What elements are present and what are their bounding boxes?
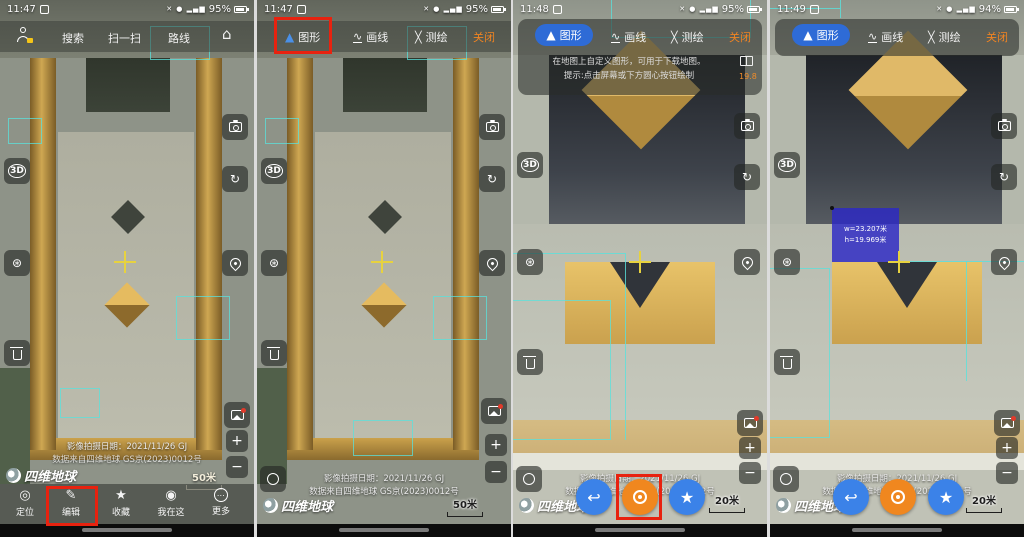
panel-draw-menu: 11:47 ✕ ● ▂▄▆ 95% ▲ 图形 ∿ 画线 ╳ 测绘 关闭 3D ⊛… [257, 0, 511, 537]
layers-icon: ⊛ [12, 256, 22, 270]
layers-icon: ⊛ [782, 255, 792, 269]
battery-percent: 95% [466, 4, 488, 15]
line-label: 画线 [366, 29, 388, 45]
circle-icon [523, 473, 535, 485]
logo-swirl-icon [519, 498, 534, 513]
close-button[interactable]: 关闭 [729, 29, 751, 45]
draw-line-button[interactable]: ∿ 画线 [353, 29, 388, 45]
delete-button[interactable] [4, 340, 30, 366]
zoom-out-button[interactable]: − [996, 462, 1018, 484]
camera-button[interactable] [734, 113, 760, 139]
compass-button[interactable] [516, 466, 542, 492]
pin-icon [739, 254, 755, 270]
three-d-icon: 3D [8, 164, 27, 178]
camera-button[interactable] [479, 114, 505, 140]
plus-icon: + [490, 437, 502, 453]
undo-button[interactable]: ↩ [576, 479, 612, 515]
trash-icon [526, 359, 535, 369]
map-scale: 50米 [447, 496, 483, 517]
minus-icon: − [1001, 465, 1013, 481]
battery-icon [1004, 6, 1017, 13]
four-screenshot-strip: 11:47 ✕ ● ▂▄▆ 95% 搜索 扫一扫 路线 ⌂ 3D [0, 0, 1024, 537]
camera-icon [741, 121, 754, 131]
close-button[interactable]: 关闭 [986, 29, 1008, 45]
scale-bar [447, 512, 483, 517]
scan-label: 扫一扫 [108, 30, 141, 46]
status-bar: 11:47 ✕ ● ▂▄▆ 95% [0, 0, 254, 18]
mode-3d-button[interactable]: 3D [261, 158, 287, 184]
vector-overlay [625, 253, 626, 440]
highlight-box-draw-center [616, 474, 662, 520]
hint-text-line2: 提示:点击屏幕或下方圆心按钮绘制 [527, 69, 731, 81]
three-d-icon: 3D [265, 164, 284, 178]
refresh-view-button[interactable]: ↻ [734, 164, 760, 190]
map-crosshair [629, 251, 651, 273]
map-crosshair [888, 251, 910, 273]
share-screenshot-button[interactable] [994, 410, 1020, 436]
close-label: 关闭 [986, 29, 1008, 45]
layers-button[interactable]: ⊛ [774, 249, 800, 275]
home-indicator[interactable] [82, 528, 172, 532]
shape-tool-button-active[interactable]: ▲ 图形 [535, 24, 593, 46]
plus-icon: + [744, 440, 756, 456]
picture-icon [744, 418, 757, 428]
bottom-nav: ◎ 定位 ✎ 编辑 ★ 收藏 ◉ 我在这 ⋯ 更多 [0, 484, 254, 524]
nav-more[interactable]: ⋯ 更多 [198, 488, 244, 517]
refresh-view-button[interactable]: ↻ [479, 166, 505, 192]
shape-tool-button-active[interactable]: ▲ 图形 [792, 24, 850, 46]
picture-icon [488, 406, 501, 416]
survey-label: 测绘 [682, 29, 704, 45]
signal-icons: ✕ ● ▂▄▆ [936, 5, 976, 13]
camera-icon [229, 122, 242, 132]
save-favorite-button[interactable]: ★ [669, 479, 705, 515]
measure-width: w=23.207米 [844, 224, 887, 235]
layers-button[interactable]: ⊛ [517, 249, 543, 275]
survey-label: 测绘 [426, 29, 448, 45]
shape-label: 图形 [560, 27, 582, 43]
route-button[interactable]: 路线 [168, 30, 190, 46]
survey-cross-icon: ╳ [928, 32, 935, 43]
pin-icon [227, 255, 243, 271]
clock: 11:49 [777, 4, 806, 15]
compass-button[interactable] [260, 466, 286, 492]
zoom-out-button[interactable]: − [739, 462, 761, 484]
mode-3d-button[interactable]: 3D [4, 158, 30, 184]
delete-button[interactable] [517, 349, 543, 375]
share-screenshot-button[interactable] [481, 398, 507, 424]
close-label: 关闭 [473, 29, 495, 45]
minus-icon: − [231, 459, 243, 475]
imagery-date: 影像拍摄日期：2021/11/26 GJ [257, 472, 511, 484]
camera-button[interactable] [991, 113, 1017, 139]
scale-label: 50米 [453, 500, 477, 511]
three-d-icon: 3D [778, 158, 797, 172]
polyline-icon: ∿ [353, 31, 362, 43]
pin-icon [996, 254, 1012, 270]
battery-percent: 94% [979, 4, 1001, 15]
close-label: 关闭 [729, 29, 751, 45]
circle-icon [267, 473, 279, 485]
app-logo: 四维地球 [263, 496, 333, 515]
dot-circle-icon: ◉ [165, 488, 176, 503]
star-icon: ★ [680, 488, 694, 507]
badge [27, 38, 33, 43]
undo-icon: ↩ [587, 488, 600, 507]
zoom-out-button[interactable]: − [226, 456, 248, 478]
shape-cloud-icon: ▲ [546, 29, 555, 41]
refresh-view-button[interactable]: ↻ [222, 166, 248, 192]
signal-icons: ✕ ● ▂▄▆ [166, 5, 206, 13]
place-pin-button[interactable] [734, 249, 760, 275]
highlight-box-shape [274, 17, 332, 54]
undo-button[interactable]: ↩ [833, 479, 869, 515]
place-pin-button[interactable] [479, 250, 505, 276]
clock: 11:48 [520, 4, 549, 15]
battery-percent: 95% [209, 4, 231, 15]
person-icon [16, 27, 31, 42]
delete-button[interactable] [261, 340, 287, 366]
system-bar [257, 524, 511, 537]
scale-label: 20米 [715, 496, 739, 507]
nav-favorite[interactable]: ★ 收藏 [98, 488, 144, 518]
status-bar: 11:49 ✕ ● ▂▄▆ 94% [770, 0, 1024, 18]
battery-percent: 95% [722, 4, 744, 15]
status-bar: 11:48 ✕ ● ▂▄▆ 95% [513, 0, 767, 18]
survey-label: 测绘 [939, 29, 961, 45]
vector-overlay [433, 296, 487, 340]
map-scale: 20米 [966, 492, 1002, 513]
locate-icon: ◎ [19, 488, 30, 503]
share-screenshot-button[interactable] [737, 410, 763, 436]
place-pin-button[interactable] [991, 249, 1017, 275]
picture-icon [231, 410, 244, 420]
draw-center-button[interactable] [880, 479, 916, 515]
vector-overlay [176, 296, 230, 340]
panel-main-map: 11:47 ✕ ● ▂▄▆ 95% 搜索 扫一扫 路线 ⌂ 3D [0, 0, 254, 537]
imagery-date: 影像拍摄日期：2021/11/26 GJ [0, 440, 254, 452]
map-legend-icon[interactable] [740, 56, 753, 66]
shape-cloud-icon: ▲ [803, 29, 812, 41]
rotate-icon: ↻ [999, 170, 1009, 184]
target-icon [891, 490, 905, 504]
system-bar [513, 524, 767, 537]
rotate-icon: ↻ [230, 172, 240, 186]
map-roof [832, 262, 982, 344]
polyline-icon: ∿ [611, 31, 620, 43]
save-favorite-button[interactable]: ★ [928, 479, 964, 515]
three-d-icon: 3D [521, 158, 540, 172]
scale-label: 20米 [972, 496, 996, 507]
app-logo: 四维地球 [6, 466, 76, 485]
logo-swirl-icon [776, 498, 791, 513]
more-label: 更多 [212, 504, 230, 517]
scale-bar [709, 508, 745, 513]
home-button[interactable]: ⌂ [222, 25, 232, 43]
status-bar: 11:47 ✕ ● ▂▄▆ 95% [257, 0, 511, 18]
close-button[interactable]: 关闭 [473, 29, 495, 45]
search-button[interactable]: 搜索 [62, 30, 84, 46]
rotate-icon: ↻ [487, 172, 497, 186]
place-pin-button[interactable] [222, 250, 248, 276]
locate-label: 定位 [16, 505, 34, 518]
zoom-level-value: 19.8 [739, 72, 757, 81]
signal-icons: ✕ ● ▂▄▆ [423, 5, 463, 13]
logo-text: 四维地球 [281, 496, 333, 515]
pin-icon [484, 255, 500, 271]
survey-button[interactable]: ╳ 测绘 [415, 29, 448, 45]
screenshot-notification-icon [553, 5, 562, 14]
panel-measured-shape: w=23.207米 h=19.969米 11:49 ✕ ● ▂▄▆ 94% ▲ … [770, 0, 1024, 537]
map-scale: 20米 [709, 492, 745, 513]
camera-button[interactable] [222, 114, 248, 140]
more-ellipsis-icon: ⋯ [214, 488, 228, 502]
layers-icon: ⊛ [269, 256, 279, 270]
survey-cross-icon: ╳ [671, 32, 678, 43]
data-source: 数据来自四维地球 GS京(2023)0012号 [0, 453, 254, 465]
trash-icon [13, 350, 22, 360]
picture-icon [1001, 418, 1014, 428]
draw-line-button[interactable]: ∿ 画线 [611, 29, 646, 45]
share-screenshot-button[interactable] [224, 402, 250, 428]
plus-icon: + [231, 433, 243, 449]
survey-cross-icon: ╳ [415, 32, 422, 43]
zoom-in-button[interactable]: + [226, 430, 248, 452]
draw-line-button[interactable]: ∿ 画线 [868, 29, 903, 45]
account-button[interactable] [16, 27, 31, 42]
shape-label: 图形 [817, 27, 839, 43]
rotate-icon: ↻ [742, 170, 752, 184]
highlight-box-edit [46, 486, 98, 526]
nav-locate[interactable]: ◎ 定位 [2, 488, 48, 518]
home-indicator[interactable] [852, 528, 942, 532]
star-icon: ★ [939, 488, 953, 507]
clock: 11:47 [264, 4, 293, 15]
layers-button[interactable]: ⊛ [261, 250, 287, 276]
scan-button[interactable]: 扫一扫 [108, 30, 141, 46]
logo-swirl-icon [263, 498, 278, 513]
layers-icon: ⊛ [525, 255, 535, 269]
trash-icon [783, 359, 792, 369]
vector-overlay [8, 118, 42, 144]
map-crosshair [371, 251, 393, 273]
vector-overlay [353, 420, 413, 456]
mode-3d-button[interactable]: 3D [774, 152, 800, 178]
signal-icons: ✕ ● ▂▄▆ [679, 5, 719, 13]
line-label: 画线 [881, 29, 903, 45]
home-indicator[interactable] [595, 528, 685, 532]
camera-icon [486, 122, 499, 132]
camera-icon [998, 121, 1011, 131]
zoom-in-button[interactable]: + [485, 434, 507, 456]
minus-icon: − [490, 464, 502, 480]
im-here-label: 我在这 [157, 505, 184, 518]
delete-button[interactable] [774, 349, 800, 375]
system-bar [770, 524, 1024, 537]
zoom-in-button[interactable]: + [996, 437, 1018, 459]
scale-bar [966, 508, 1002, 513]
battery-icon [747, 6, 760, 13]
logo-swirl-icon [6, 468, 21, 483]
line-label: 画线 [624, 29, 646, 45]
favorite-label: 收藏 [112, 505, 130, 518]
battery-icon [491, 6, 504, 13]
map-crosshair [114, 251, 136, 273]
vector-overlay [60, 388, 100, 418]
survey-button[interactable]: ╳ 测绘 [671, 29, 704, 45]
mode-3d-button[interactable]: 3D [517, 152, 543, 178]
search-label: 搜索 [62, 30, 84, 46]
vector-overlay [265, 118, 299, 144]
battery-icon [234, 6, 247, 13]
survey-button[interactable]: ╳ 测绘 [928, 29, 961, 45]
home-icon: ⌂ [222, 25, 232, 43]
hint-text-line1: 在地图上自定义图形，可用于下载地图。 [527, 55, 731, 67]
home-indicator[interactable] [339, 528, 429, 532]
layers-button[interactable]: ⊛ [4, 250, 30, 276]
zoom-out-button[interactable]: − [485, 461, 507, 483]
screenshot-notification-icon [297, 5, 306, 14]
screenshot-notification-icon [40, 5, 49, 14]
vector-overlay [966, 261, 967, 381]
polyline-icon: ∿ [868, 31, 877, 43]
nav-im-here[interactable]: ◉ 我在这 [148, 488, 194, 518]
circle-icon [780, 473, 792, 485]
refresh-view-button[interactable]: ↻ [991, 164, 1017, 190]
route-label: 路线 [168, 30, 190, 46]
zoom-in-button[interactable]: + [739, 437, 761, 459]
clock: 11:47 [7, 4, 36, 15]
scale-label: 50米 [192, 473, 216, 484]
compass-button[interactable] [773, 466, 799, 492]
measure-height: h=19.969米 [845, 235, 887, 246]
trash-icon [270, 350, 279, 360]
plus-icon: + [1001, 440, 1013, 456]
star-icon: ★ [115, 488, 127, 503]
panel-shape-hint: 11:48 ✕ ● ▂▄▆ 95% ▲ 图形 ∿ 画线 ╳ 测绘 关闭 在地图上… [513, 0, 767, 537]
minus-icon: − [744, 465, 756, 481]
logo-text: 四维地球 [24, 466, 76, 485]
system-bar [0, 524, 254, 537]
screenshot-notification-icon [810, 5, 819, 14]
undo-icon: ↩ [844, 488, 857, 507]
